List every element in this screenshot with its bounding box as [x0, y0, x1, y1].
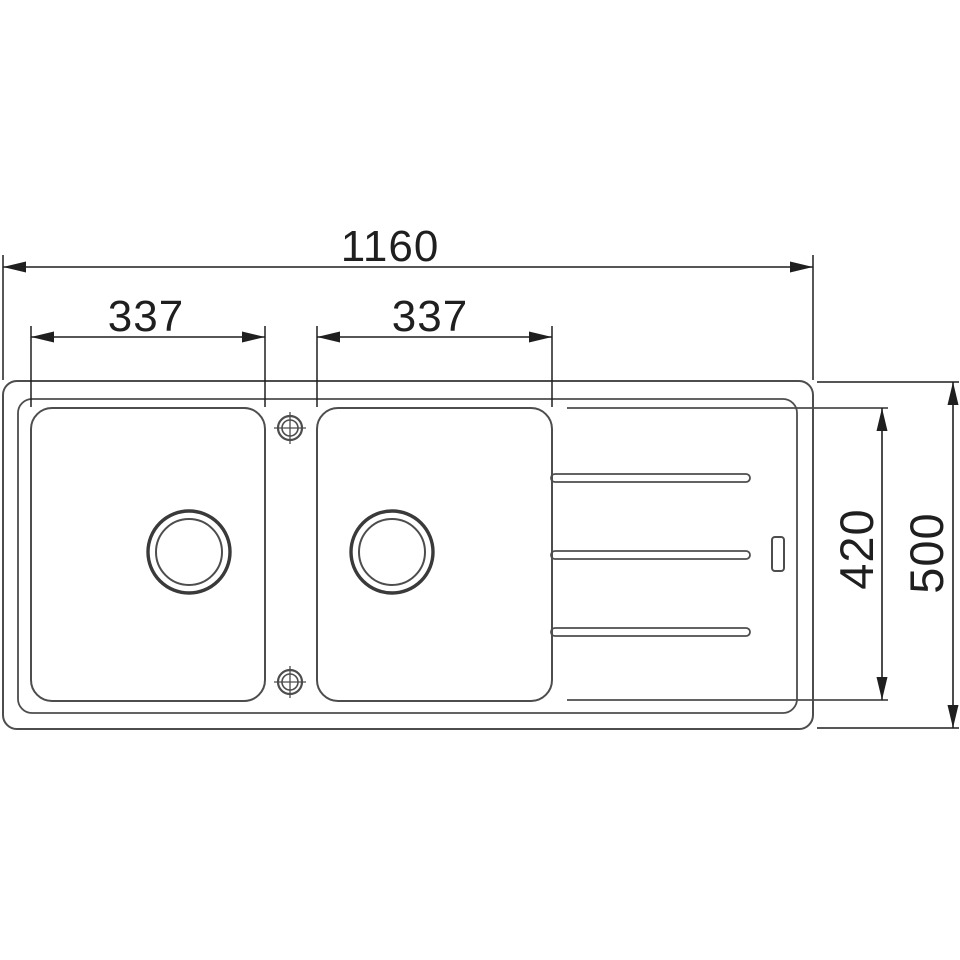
dim-left-bowl-width: 337 [31, 292, 265, 407]
dim-arrow-left [317, 332, 340, 343]
sink-technical-drawing: 1160 337 337 420 [0, 0, 960, 960]
right-drain-inner-circle [359, 519, 425, 585]
dim-bowl-depth: 420 [830, 408, 888, 700]
dim-label-overall-depth: 500 [900, 512, 953, 593]
tap-hole-bottom [274, 666, 306, 698]
dim-label-left-bowl-width: 337 [108, 292, 184, 341]
dim-arrow-up [948, 382, 959, 405]
dim-arrow-left [31, 332, 54, 343]
left-drain-inner-circle [156, 519, 222, 585]
drawing-svg: 1160 337 337 420 [0, 0, 960, 960]
right-drain-outer-circle [351, 511, 433, 593]
sink-inner-rim-outline [18, 399, 797, 713]
drainer-groove [551, 628, 750, 636]
dim-label-overall-width: 1160 [341, 222, 440, 271]
overflow-slot [772, 537, 784, 571]
drainer-groove [551, 551, 750, 559]
dim-right-bowl-width: 337 [317, 292, 552, 407]
dim-arrow-right [242, 332, 265, 343]
dim-arrow-left [3, 262, 26, 273]
dim-arrow-down [877, 677, 888, 700]
left-drain-outer-circle [148, 511, 230, 593]
sink-body [3, 381, 888, 729]
right-bowl-drain [351, 511, 433, 593]
left-bowl-drain [148, 511, 230, 593]
dim-label-right-bowl-width: 337 [392, 292, 468, 341]
dim-label-bowl-depth: 420 [830, 508, 883, 589]
dim-arrow-right [529, 332, 552, 343]
dim-arrow-up [877, 408, 888, 431]
dim-arrow-right [790, 262, 813, 273]
sink-outer-rim-outline [3, 381, 813, 729]
tap-hole-top [274, 412, 306, 444]
drainer-groove [551, 474, 750, 482]
dim-arrow-down [948, 705, 959, 728]
